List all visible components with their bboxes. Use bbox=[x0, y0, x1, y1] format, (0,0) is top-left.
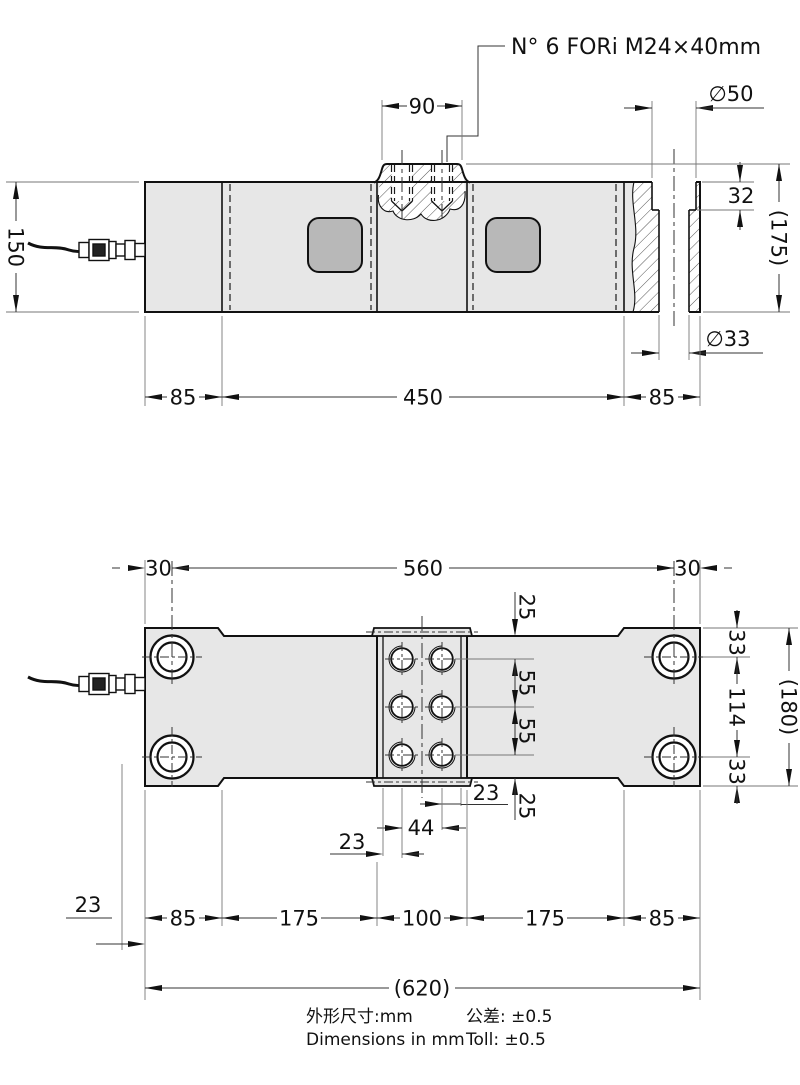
svg-text:32: 32 bbox=[728, 184, 755, 208]
plan-view: 30 560 30 25 55 55 25 bbox=[28, 557, 800, 1001]
svg-text:175: 175 bbox=[279, 907, 319, 931]
svg-text:450: 450 bbox=[403, 386, 443, 410]
svg-text:55: 55 bbox=[515, 670, 539, 697]
svg-text:33: 33 bbox=[725, 629, 749, 656]
svg-text:(180): (180) bbox=[777, 679, 800, 735]
footer-dims-en: Dimensions in mm bbox=[306, 1030, 465, 1050]
svg-text:23: 23 bbox=[339, 830, 366, 854]
svg-text:33: 33 bbox=[725, 758, 749, 785]
cable-connector-plan bbox=[28, 674, 145, 695]
svg-text:(175): (175) bbox=[767, 210, 791, 266]
dim-side-bottom-row: 85 450 85 bbox=[145, 316, 700, 410]
svg-text:114: 114 bbox=[725, 687, 749, 727]
svg-text:23: 23 bbox=[75, 893, 102, 917]
svg-text:23: 23 bbox=[473, 781, 500, 805]
footer-tol-cn: 公差: ±0.5 bbox=[466, 1007, 552, 1027]
dim-plan-bottom-row: 85 175 100 175 85 bbox=[145, 790, 700, 931]
dim-plan-top-row: 30 560 30 bbox=[112, 557, 732, 625]
svg-text:55: 55 bbox=[515, 718, 539, 745]
gauge-pocket-left bbox=[308, 218, 362, 272]
note-label: N° 6 FORi M24×40mm bbox=[511, 35, 761, 60]
svg-text:25: 25 bbox=[515, 594, 539, 621]
svg-text:∅50: ∅50 bbox=[708, 82, 753, 106]
svg-text:30: 30 bbox=[145, 557, 172, 581]
svg-text:44: 44 bbox=[408, 816, 435, 840]
svg-text:85: 85 bbox=[170, 386, 197, 410]
gauge-pocket-right bbox=[486, 218, 540, 272]
dim-recess-bottom: 25 bbox=[512, 778, 539, 820]
dim-overall-width: (180) bbox=[777, 628, 800, 786]
svg-text:85: 85 bbox=[170, 907, 197, 931]
svg-text:85: 85 bbox=[649, 386, 676, 410]
svg-text:100: 100 bbox=[402, 907, 442, 931]
svg-text:150: 150 bbox=[4, 227, 28, 267]
svg-text:90: 90 bbox=[409, 95, 436, 119]
dim-col-pitch: 44 bbox=[377, 788, 466, 858]
footer-dims-cn: 外形尺寸:mm bbox=[306, 1007, 413, 1027]
dim-counterbore-depth: 32 bbox=[697, 162, 754, 230]
footer: 外形尺寸:mm 公差: ±0.5 Dimensions in mm Toll: … bbox=[306, 1007, 552, 1050]
technical-drawing: N° 6 FORi M24×40mm 90 ∅50 32 bbox=[0, 0, 800, 1085]
side-view: N° 6 FORi M24×40mm 90 ∅50 32 bbox=[4, 35, 791, 410]
svg-text:560: 560 bbox=[403, 557, 443, 581]
svg-text:(620): (620) bbox=[394, 977, 450, 1001]
dim-cable-offset: 23 bbox=[66, 764, 145, 950]
svg-text:175: 175 bbox=[525, 907, 565, 931]
svg-text:25: 25 bbox=[515, 793, 539, 820]
dim-boss-width: 90 bbox=[382, 95, 462, 161]
dim-hole-dia: ∅33 bbox=[631, 315, 763, 360]
cable-connector bbox=[28, 240, 145, 261]
svg-text:∅33: ∅33 bbox=[705, 327, 750, 351]
svg-text:85: 85 bbox=[649, 907, 676, 931]
svg-text:30: 30 bbox=[674, 557, 701, 581]
footer-tol-en: Toll: ±0.5 bbox=[465, 1030, 546, 1050]
